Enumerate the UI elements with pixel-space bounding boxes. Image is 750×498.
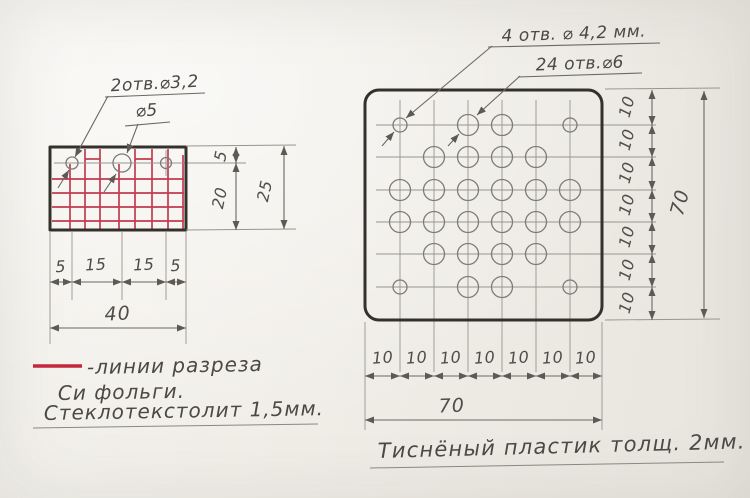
dim-10-label: 10 bbox=[473, 347, 496, 367]
chain-label-15a: 15 bbox=[85, 254, 107, 274]
construction-grid bbox=[365, 88, 720, 430]
dim-10-label: 10 bbox=[615, 160, 639, 186]
dim-40-label: 40 bbox=[104, 302, 131, 325]
ext-top-edge bbox=[605, 88, 720, 89]
holes-d4-2 bbox=[393, 118, 577, 294]
holes24-label: 24 отв.⌀6 bbox=[535, 52, 624, 75]
leader-holes24 bbox=[477, 76, 520, 115]
dim-10-label: 10 bbox=[574, 347, 597, 367]
right-drawing: 4 отв. ⌀ 4,2 мм. 24 отв.⌀6 10 10 10 10 1… bbox=[365, 21, 746, 468]
dim-10-label: 10 bbox=[615, 192, 639, 218]
chain-label-5b: 5 bbox=[170, 256, 182, 276]
dim-10-label: 10 bbox=[405, 347, 428, 367]
ext-top bbox=[186, 145, 296, 146]
leader-hole5 bbox=[127, 124, 138, 153]
holes-d6 bbox=[390, 115, 581, 298]
dim-5-label: 5 bbox=[210, 149, 231, 163]
dim-20-label: 20 bbox=[208, 185, 231, 210]
ext-bottom-edge bbox=[605, 319, 720, 320]
right-dim-chain: 10 10 10 10 10 10 10 70 bbox=[615, 90, 704, 320]
technical-drawing: 2отв.⌀3,2 ⌀5 5 20 25 5 15 15 bbox=[0, 0, 750, 498]
leader-holes4-back bbox=[382, 132, 394, 146]
leader-holes24-back bbox=[448, 134, 459, 146]
dim-10-label: 10 bbox=[439, 347, 462, 367]
legend-material: Стеклотекстолит 1,5мм. bbox=[44, 396, 324, 425]
chain-label-15b: 15 bbox=[133, 254, 155, 274]
dim-25-label: 25 bbox=[253, 178, 276, 203]
dim-10-label: 10 bbox=[615, 224, 639, 250]
dim-10-label: 10 bbox=[371, 347, 394, 367]
dim-10-label: 10 bbox=[541, 347, 564, 367]
note-underline bbox=[370, 462, 724, 468]
dim-10-label: 10 bbox=[507, 347, 530, 367]
dim-70-label: 70 bbox=[438, 395, 465, 418]
chain-label-5a: 5 bbox=[55, 257, 67, 277]
left-right-dims: 5 20 25 bbox=[186, 145, 296, 230]
leader-holes4 bbox=[406, 46, 492, 118]
paper-sheet: 2отв.⌀3,2 ⌀5 5 20 25 5 15 15 bbox=[0, 0, 750, 498]
label-underline-hole5 bbox=[125, 122, 170, 126]
right-material-note: Тиснёный пластик толщ. 2мм. bbox=[378, 429, 746, 463]
dim-10-label: 10 bbox=[615, 290, 639, 316]
dim-10-label: 10 bbox=[615, 94, 639, 120]
left-drawing: 2отв.⌀3,2 ⌀5 5 20 25 5 15 15 bbox=[33, 72, 324, 428]
plastic-plate-outline bbox=[365, 90, 602, 320]
dim-70-label: 70 bbox=[666, 187, 694, 218]
dim-10-label: 10 bbox=[615, 127, 639, 153]
dim-10-label: 10 bbox=[615, 257, 639, 283]
left-legend: -линии разреза Си фольги. Стеклотекстоли… bbox=[33, 352, 324, 428]
legend-underline bbox=[33, 424, 318, 428]
left-bottom-dims: 5 15 15 5 40 bbox=[50, 232, 186, 344]
ext-bottom bbox=[186, 229, 296, 230]
holes4-label: 4 отв. ⌀ 4,2 мм. bbox=[501, 21, 646, 46]
foil-cut-grid bbox=[52, 149, 184, 229]
holes2-label: 2отв.⌀3,2 bbox=[110, 72, 199, 97]
leader-hole5-back bbox=[104, 174, 116, 192]
legend-cut-lines: -линии разреза bbox=[87, 352, 263, 379]
hole5-label: ⌀5 bbox=[135, 100, 158, 121]
bottom-dim-chain: 10 10 10 10 10 10 10 70 bbox=[365, 347, 602, 420]
